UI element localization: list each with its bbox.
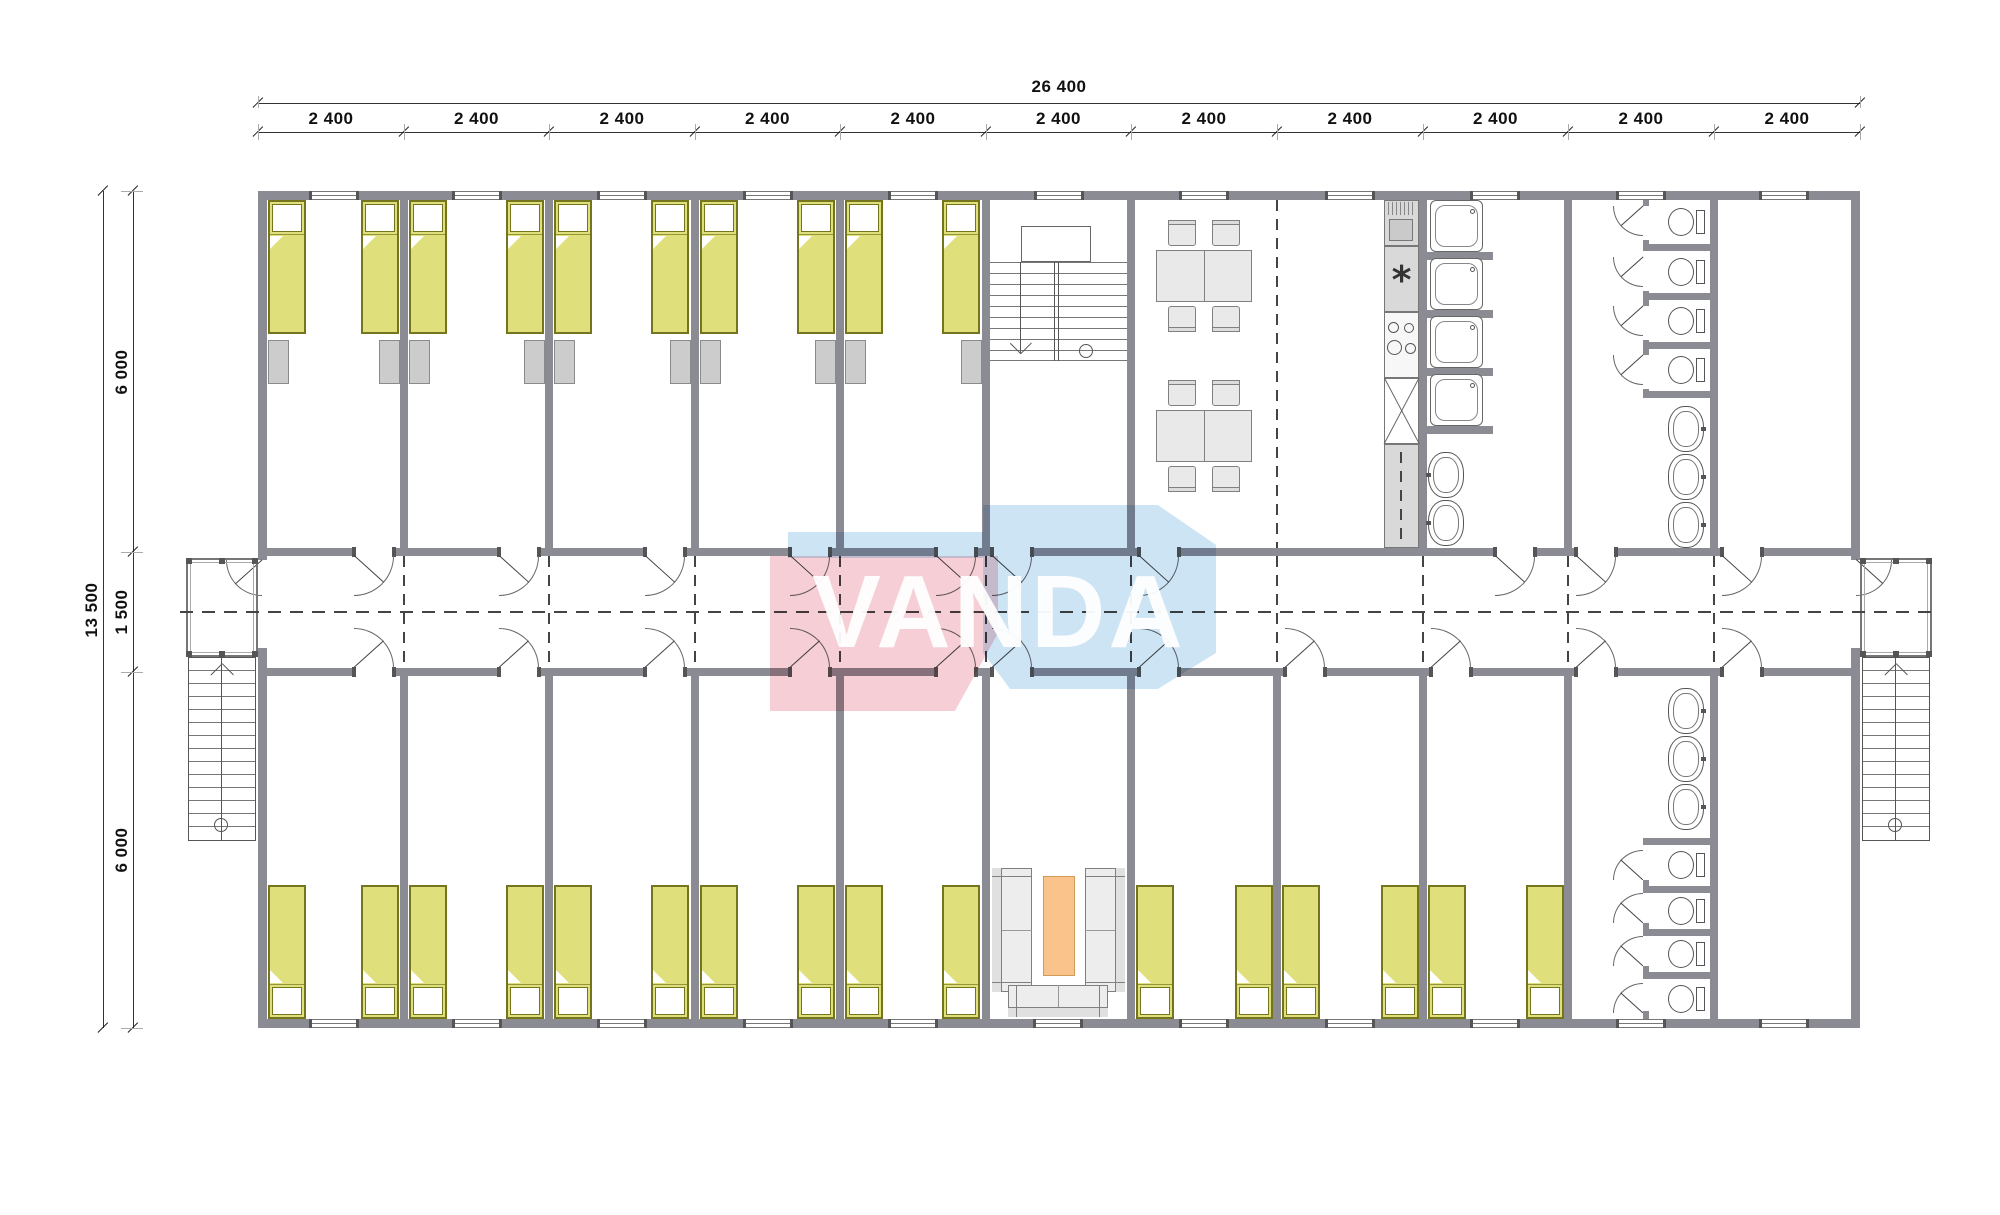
window-pane: [1617, 1023, 1665, 1024]
bed-pillow: [413, 204, 443, 232]
grid-dashed-line: [548, 556, 550, 668]
dimension-ext: [549, 124, 550, 140]
dimension-line: [258, 132, 1860, 133]
bed-fold: [1237, 970, 1250, 983]
bed-blanket-line: [1383, 984, 1417, 985]
bed-pillow: [413, 987, 443, 1015]
bed-fold: [702, 236, 715, 249]
shower-drain: [1470, 325, 1475, 330]
dim-label-top-seg: 2 400: [577, 110, 667, 128]
bed-pillow: [704, 204, 734, 232]
toilet-bowl: [1668, 208, 1694, 236]
wall: [1762, 668, 1851, 676]
window-post: [356, 191, 359, 200]
bed-fold: [411, 970, 424, 983]
window-post: [1806, 1019, 1809, 1028]
window-post: [309, 191, 312, 200]
wall: [1643, 391, 1710, 398]
bed-pillow: [1530, 987, 1560, 1015]
bed-blanket-line: [270, 234, 304, 235]
window-post: [888, 1019, 891, 1028]
wash-basin-inner: [1433, 505, 1459, 541]
bed-blanket-line: [944, 984, 978, 985]
bed-blanket-line: [799, 234, 833, 235]
window-pane: [1034, 1023, 1082, 1024]
window-pane: [889, 195, 937, 196]
stair-circle: [214, 818, 228, 832]
bed-pillow: [704, 987, 734, 1015]
window-post: [1179, 1019, 1182, 1028]
wall: [1710, 676, 1718, 1019]
window-post: [356, 1019, 359, 1028]
bed-fold: [1430, 970, 1443, 983]
line: [1392, 202, 1393, 215]
bed-pillow: [946, 204, 976, 232]
window-pane: [598, 195, 646, 196]
sofa-armrest: [1099, 985, 1108, 1017]
line: [1404, 202, 1405, 215]
window-post: [1033, 1019, 1036, 1028]
dimension-ext: [1568, 124, 1569, 140]
wardrobe: [815, 340, 836, 384]
window-post: [935, 191, 938, 200]
wall: [1649, 244, 1710, 251]
window-pane: [1760, 1023, 1808, 1024]
wall: [1127, 200, 1135, 548]
coffee-table: [1043, 876, 1075, 976]
dimension-ext: [1714, 124, 1715, 140]
window-post: [1616, 1019, 1619, 1028]
window-post: [1616, 191, 1619, 200]
door-jamb: [1469, 667, 1473, 677]
bed-fold: [702, 970, 715, 983]
bed-blanket-line: [1237, 984, 1271, 985]
line: [1895, 658, 1896, 840]
chair-backrest: [1168, 327, 1196, 332]
bed-fold: [508, 236, 521, 249]
bed-fold: [1383, 970, 1396, 983]
kitchen-hood-symbol: *: [1384, 260, 1419, 300]
wardrobe: [670, 340, 691, 384]
dim-label-top-seg: 2 400: [1305, 110, 1395, 128]
dimension-line: [103, 191, 104, 1028]
window-post: [1034, 191, 1037, 200]
dimension-ext: [258, 124, 259, 140]
wall: [545, 676, 553, 1019]
toilet-bowl: [1668, 307, 1694, 335]
wall: [1471, 668, 1576, 676]
window-pane: [1760, 195, 1808, 196]
wall: [1710, 200, 1718, 548]
window-post: [1179, 191, 1182, 200]
bed-blanket-line: [270, 984, 304, 985]
grid-dashed-line: [1276, 556, 1278, 668]
grid-dashed-line: [403, 556, 405, 668]
sofa-backrest: [1115, 868, 1125, 992]
window-pane: [1471, 1023, 1519, 1024]
wash-basin-faucet: [1701, 709, 1706, 713]
wash-basin-faucet: [1426, 473, 1431, 477]
wash-basin-faucet: [1426, 521, 1431, 525]
dimension-ext: [121, 191, 143, 192]
wall: [394, 548, 499, 556]
wall: [1851, 648, 1860, 1019]
dim-label-top-seg: 2 400: [286, 110, 376, 128]
wall: [1423, 426, 1493, 434]
toilet-tank: [1696, 358, 1705, 382]
door-opening: [354, 548, 394, 556]
window-post: [790, 191, 793, 200]
wall: [1851, 200, 1860, 560]
window-post: [1663, 1019, 1666, 1028]
wall: [267, 548, 354, 556]
door-jamb: [1614, 667, 1618, 677]
hob-burner: [1404, 323, 1414, 333]
wall: [400, 200, 408, 548]
wardrobe: [700, 340, 721, 384]
wash-basin-inner: [1673, 741, 1699, 777]
wall: [1649, 886, 1710, 893]
bed-blanket-line: [944, 234, 978, 235]
bed-blanket-line: [508, 234, 542, 235]
toilet-bowl: [1668, 897, 1694, 925]
porch-post: [219, 558, 225, 564]
bed-blanket-line: [363, 984, 397, 985]
dimension-ext: [1277, 124, 1278, 140]
wardrobe: [268, 340, 289, 384]
bed-fold: [1138, 970, 1151, 983]
dim-label-top-seg: 2 400: [868, 110, 958, 128]
door-opening: [1722, 668, 1762, 676]
dim-label-top-overall: 26 400: [989, 78, 1129, 96]
grid-dashed-line: [1422, 556, 1424, 668]
dim-label-left-seg: 1 500: [113, 567, 131, 657]
wall: [1649, 972, 1710, 979]
wall: [982, 676, 990, 1019]
wall: [1179, 548, 1495, 556]
dim-label-top-seg: 2 400: [1596, 110, 1686, 128]
wall: [1643, 1011, 1649, 1019]
toilet-tank: [1696, 309, 1705, 333]
window-pane: [310, 195, 358, 196]
kitchen-fridge-box: [1389, 219, 1413, 241]
door-opening: [499, 668, 539, 676]
bed-blanket-line: [556, 234, 590, 235]
sofa-armrest: [992, 868, 1032, 877]
door-opening: [1576, 548, 1616, 556]
wall: [1127, 676, 1135, 1019]
wall: [1325, 668, 1431, 676]
wash-basin-inner: [1433, 457, 1459, 493]
wall: [1535, 548, 1576, 556]
line: [1400, 202, 1401, 215]
toilet-tank: [1696, 942, 1705, 966]
grid-dashed-line: [694, 556, 696, 668]
bed-fold: [799, 970, 812, 983]
window-post: [644, 1019, 647, 1028]
bed-fold: [847, 236, 860, 249]
bed-pillow: [1286, 987, 1316, 1015]
window-pane: [744, 195, 792, 196]
shower-drain: [1470, 383, 1475, 388]
wall: [258, 648, 267, 1019]
door-opening: [1431, 668, 1471, 676]
porch-inner: [190, 562, 254, 653]
dimension-ext: [404, 124, 405, 140]
dim-label-left-seg: 6 000: [113, 327, 131, 417]
window-pane: [1326, 1023, 1374, 1024]
bed-pillow: [655, 204, 685, 232]
door-jamb: [1323, 667, 1327, 677]
dim-label-top-seg: 2 400: [1451, 110, 1541, 128]
door-opening: [1722, 548, 1762, 556]
window-post: [499, 191, 502, 200]
window-post: [888, 191, 891, 200]
line: [1412, 202, 1413, 215]
bed-fold: [799, 236, 812, 249]
wall: [1616, 548, 1722, 556]
hob-burner: [1388, 322, 1399, 333]
wall: [836, 676, 844, 1019]
bed-fold: [363, 236, 376, 249]
window-post: [1806, 191, 1809, 200]
dining-table-split: [1204, 250, 1205, 302]
bed-fold: [508, 970, 521, 983]
bed-fold: [411, 236, 424, 249]
sofa-seat-split: [1085, 930, 1115, 931]
grid-dashed-line: [1567, 556, 1569, 668]
bed-pillow: [946, 987, 976, 1015]
window-pane: [1617, 195, 1665, 196]
dim-label-top-seg: 2 400: [1159, 110, 1249, 128]
door-opening: [354, 668, 394, 676]
bed-blanket-line: [702, 984, 736, 985]
bed-blanket-line: [508, 984, 542, 985]
toilet-tank: [1696, 987, 1705, 1011]
dimension-line: [133, 191, 134, 1028]
wash-basin-faucet: [1701, 805, 1706, 809]
door-jamb: [537, 667, 541, 677]
stair-divider: [1054, 262, 1059, 361]
dim-label-top-seg: 2 400: [1742, 110, 1832, 128]
window-pane: [1180, 195, 1228, 196]
dimension-line: [258, 103, 1860, 104]
wall: [982, 200, 990, 548]
line: [1020, 262, 1021, 354]
window-post: [597, 1019, 600, 1028]
toilet-bowl: [1668, 940, 1694, 968]
window-post: [1372, 191, 1375, 200]
bed-fold: [847, 970, 860, 983]
chair-backrest: [1168, 220, 1196, 225]
toilet-tank: [1696, 899, 1705, 923]
wardrobe: [961, 340, 982, 384]
bed-blanket-line: [799, 984, 833, 985]
bed-pillow: [365, 987, 395, 1015]
window-post: [1081, 191, 1084, 200]
grid-dashed-line: [1276, 200, 1278, 548]
bed-blanket-line: [847, 984, 881, 985]
bed-fold: [944, 236, 957, 249]
toilet-bowl: [1668, 356, 1694, 384]
bed-pillow: [1140, 987, 1170, 1015]
toilet-bowl: [1668, 258, 1694, 286]
wash-basin-inner: [1673, 411, 1699, 447]
bed-blanket-line: [411, 984, 445, 985]
wall: [394, 668, 499, 676]
dim-label-top-seg: 2 400: [432, 110, 522, 128]
dim-label-left-overall: 13 500: [83, 565, 101, 655]
window-pane: [453, 195, 501, 196]
bed-pillow: [1239, 987, 1269, 1015]
window-pane: [889, 1023, 937, 1024]
dimension-ext: [840, 124, 841, 140]
sofa-seat-split: [1058, 985, 1059, 1007]
door-jamb: [683, 667, 687, 677]
window-post: [499, 1019, 502, 1028]
stair-circle: [1079, 344, 1093, 358]
wall: [1616, 668, 1722, 676]
wall: [1643, 966, 1649, 979]
window-post: [1226, 191, 1229, 200]
stair-landing: [1021, 226, 1091, 262]
line: [1396, 202, 1397, 215]
wardrobe: [409, 340, 430, 384]
bed-fold: [1284, 970, 1297, 983]
wash-basin-inner: [1673, 789, 1699, 825]
window-post: [1470, 191, 1473, 200]
wall: [539, 548, 645, 556]
door-opening: [645, 668, 685, 676]
bed-pillow: [272, 987, 302, 1015]
wash-basin-inner: [1673, 507, 1699, 543]
bed-blanket-line: [847, 234, 881, 235]
grid-dashed-line: [1400, 452, 1402, 540]
window-pane: [453, 1023, 501, 1024]
window-post: [1325, 191, 1328, 200]
window-post: [1759, 1019, 1762, 1028]
grid-dashed-line: [1713, 556, 1715, 668]
dimension-ext: [121, 552, 143, 553]
chair-backrest: [1168, 487, 1196, 492]
wall: [1643, 923, 1649, 936]
door-opening: [1495, 548, 1535, 556]
wall: [685, 548, 790, 556]
bed-pillow: [849, 987, 879, 1015]
bed-blanket-line: [653, 984, 687, 985]
dimension-ext: [1423, 124, 1424, 140]
window-post: [1470, 1019, 1473, 1028]
bed-fold: [653, 236, 666, 249]
watermark-logo-text: VANDA: [778, 553, 1220, 671]
window-post: [1663, 191, 1666, 200]
window-pane: [1326, 195, 1374, 196]
wall: [1643, 880, 1649, 893]
shower-drain: [1470, 209, 1475, 214]
wardrobe: [845, 340, 866, 384]
bed-fold: [270, 970, 283, 983]
bed-pillow: [801, 204, 831, 232]
line: [1408, 202, 1409, 215]
wall: [1649, 929, 1710, 936]
bed-pillow: [1385, 987, 1415, 1015]
window-pane: [1035, 195, 1083, 196]
window-post: [1325, 1019, 1328, 1028]
dim-label-top-seg: 2 400: [1014, 110, 1104, 128]
sofa-seat-split: [1002, 930, 1032, 931]
wall: [691, 676, 699, 1019]
wall: [1643, 200, 1649, 206]
dimension-ext: [121, 1028, 143, 1029]
wall: [1419, 676, 1427, 1019]
shower-drain: [1470, 267, 1475, 272]
wash-basin-inner: [1673, 459, 1699, 495]
door-opening: [645, 548, 685, 556]
dimension-ext: [121, 672, 143, 673]
bed-blanket-line: [411, 234, 445, 235]
bed-blanket-line: [556, 984, 590, 985]
bed-pillow: [801, 987, 831, 1015]
hob-burner: [1405, 343, 1416, 354]
wall: [1564, 200, 1572, 548]
window-post: [1517, 191, 1520, 200]
window-pane: [1180, 1023, 1228, 1024]
chair-backrest: [1212, 487, 1240, 492]
door-opening: [499, 548, 539, 556]
line: [221, 658, 222, 840]
wall: [400, 676, 408, 1019]
hob-burner: [1387, 340, 1402, 355]
bed-pillow: [272, 204, 302, 232]
window-post: [644, 191, 647, 200]
wall: [691, 200, 699, 548]
bed-pillow: [510, 987, 540, 1015]
bed-pillow: [558, 204, 588, 232]
window-post: [452, 1019, 455, 1028]
stair-arrowhead: [1020, 343, 1032, 355]
dim-label-left-seg: 6 000: [113, 805, 131, 895]
wall: [258, 200, 267, 560]
dimension-ext: [258, 96, 259, 108]
bed-blanket-line: [1528, 984, 1562, 985]
wall: [1564, 676, 1572, 1019]
window-post: [1517, 1019, 1520, 1028]
wall: [836, 200, 844, 548]
wall: [539, 668, 645, 676]
wardrobe: [554, 340, 575, 384]
dimension-ext: [1860, 124, 1861, 140]
window-post: [309, 1019, 312, 1028]
toilet-tank: [1696, 260, 1705, 284]
wall: [1649, 293, 1710, 300]
dimension-ext: [1860, 96, 1861, 108]
bed-fold: [556, 970, 569, 983]
sofa-armrest: [1008, 985, 1017, 1017]
bed-pillow: [365, 204, 395, 232]
bed-pillow: [1432, 987, 1462, 1015]
bed-fold: [363, 970, 376, 983]
bed-pillow: [849, 204, 879, 232]
wash-basin-faucet: [1701, 523, 1706, 527]
window-pane: [310, 1023, 358, 1024]
window-post: [1080, 1019, 1083, 1028]
dining-table-split: [1204, 410, 1205, 462]
window-pane: [744, 1023, 792, 1024]
dimension-ext: [695, 124, 696, 140]
window-post: [743, 1019, 746, 1028]
bed-blanket-line: [1284, 984, 1318, 985]
bed-pillow: [655, 987, 685, 1015]
